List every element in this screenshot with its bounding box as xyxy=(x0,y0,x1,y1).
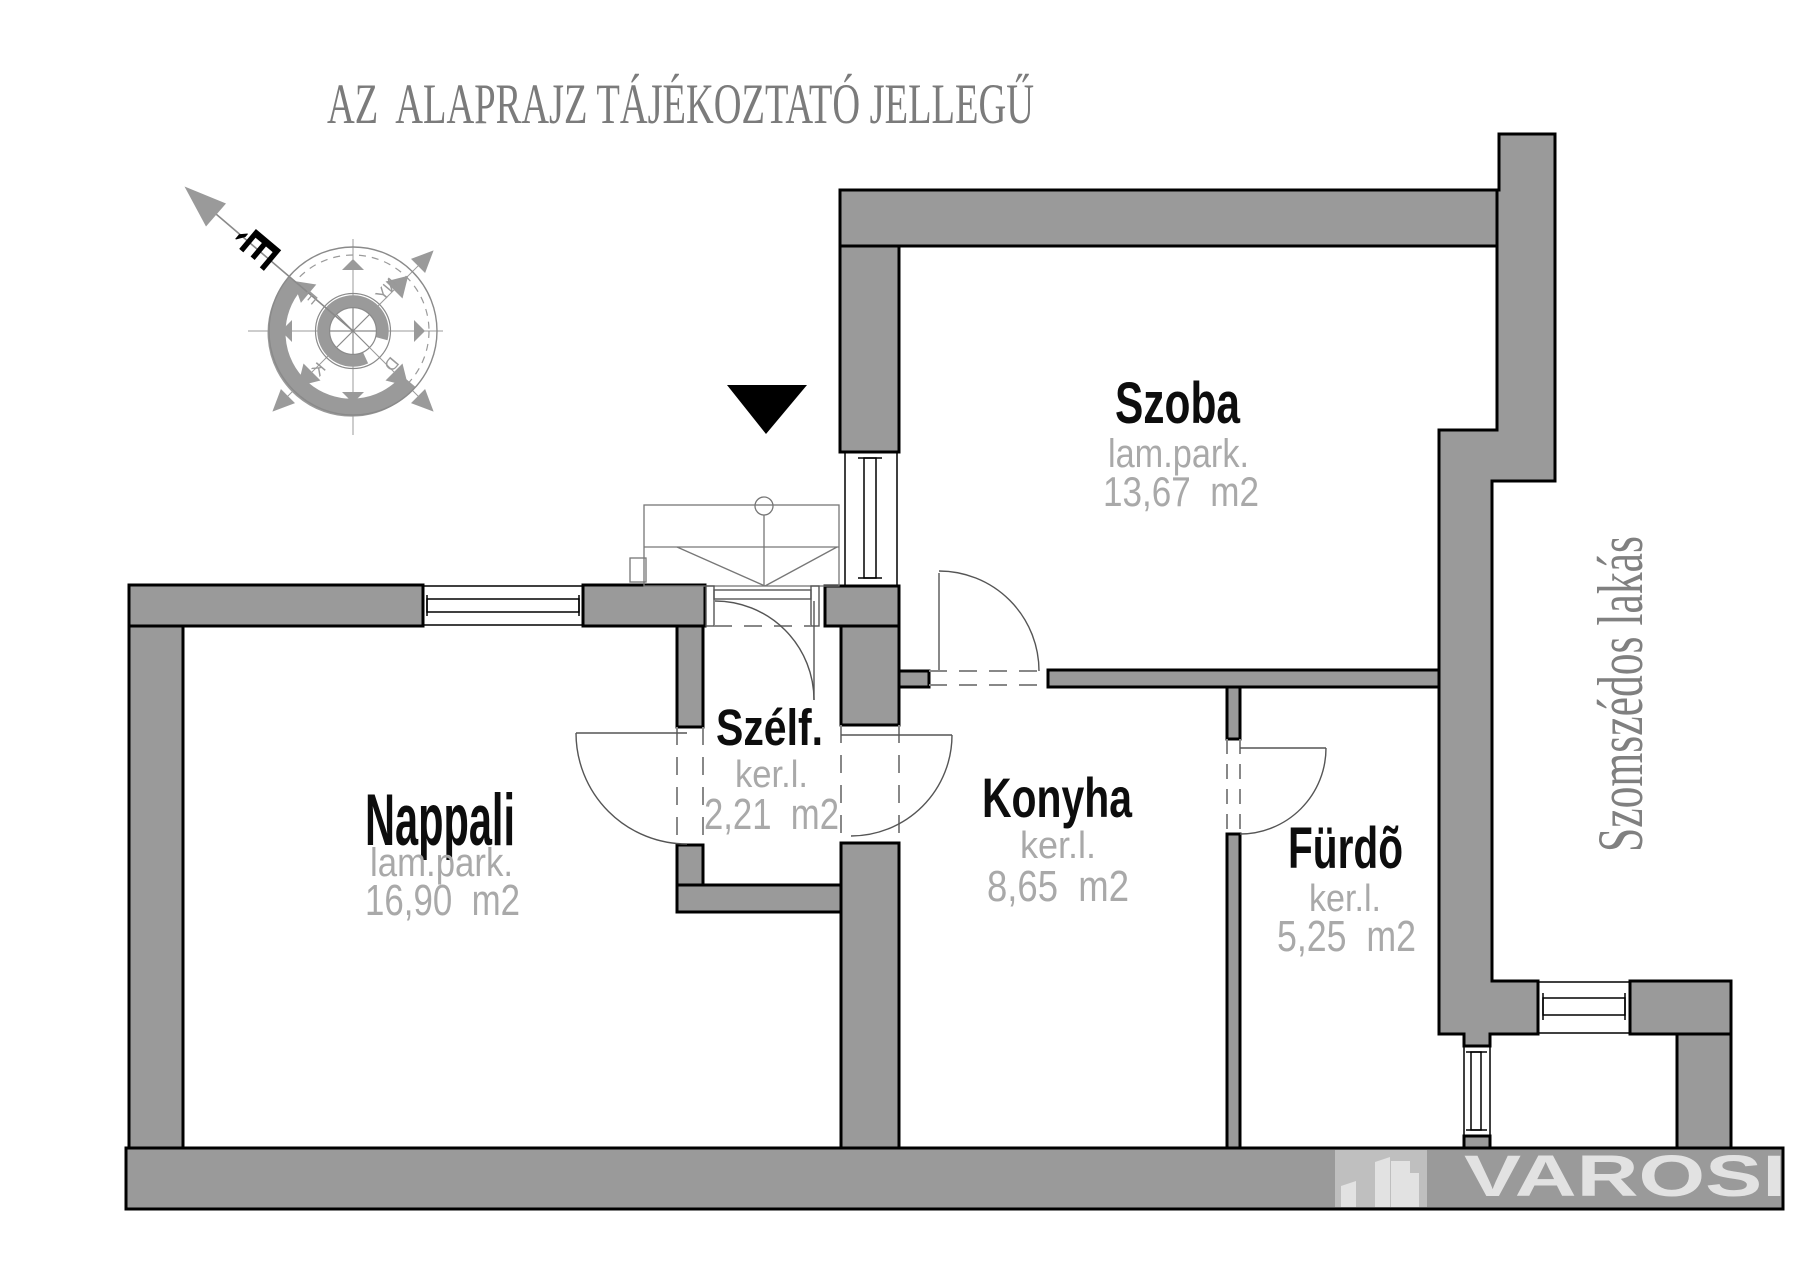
svg-text:Szomszédos lakás: Szomszédos lakás xyxy=(1585,536,1657,852)
svg-text:Fürdõ: Fürdõ xyxy=(1288,816,1403,881)
svg-text:5,25 m2: 5,25 m2 xyxy=(1277,912,1416,961)
svg-text:Konyha: Konyha xyxy=(982,766,1133,829)
svg-text:2,21 m2: 2,21 m2 xyxy=(704,790,839,839)
svg-text:AZ ALAPRAJZ TÁJÉKOZTATÓ JELLE: AZ ALAPRAJZ TÁJÉKOZTATÓ JELLEGŰ xyxy=(327,73,1034,136)
svg-text:VAROSI: VAROSI xyxy=(1464,1144,1786,1209)
svg-text:Szoba: Szoba xyxy=(1115,371,1241,436)
svg-text:ker.l.: ker.l. xyxy=(1020,825,1096,867)
svg-text:8,65 m2: 8,65 m2 xyxy=(987,862,1129,911)
svg-text:13,67 m2: 13,67 m2 xyxy=(1103,468,1259,515)
svg-text:16,90 m2: 16,90 m2 xyxy=(365,876,520,925)
svg-text:Szélf.: Szélf. xyxy=(716,699,823,756)
